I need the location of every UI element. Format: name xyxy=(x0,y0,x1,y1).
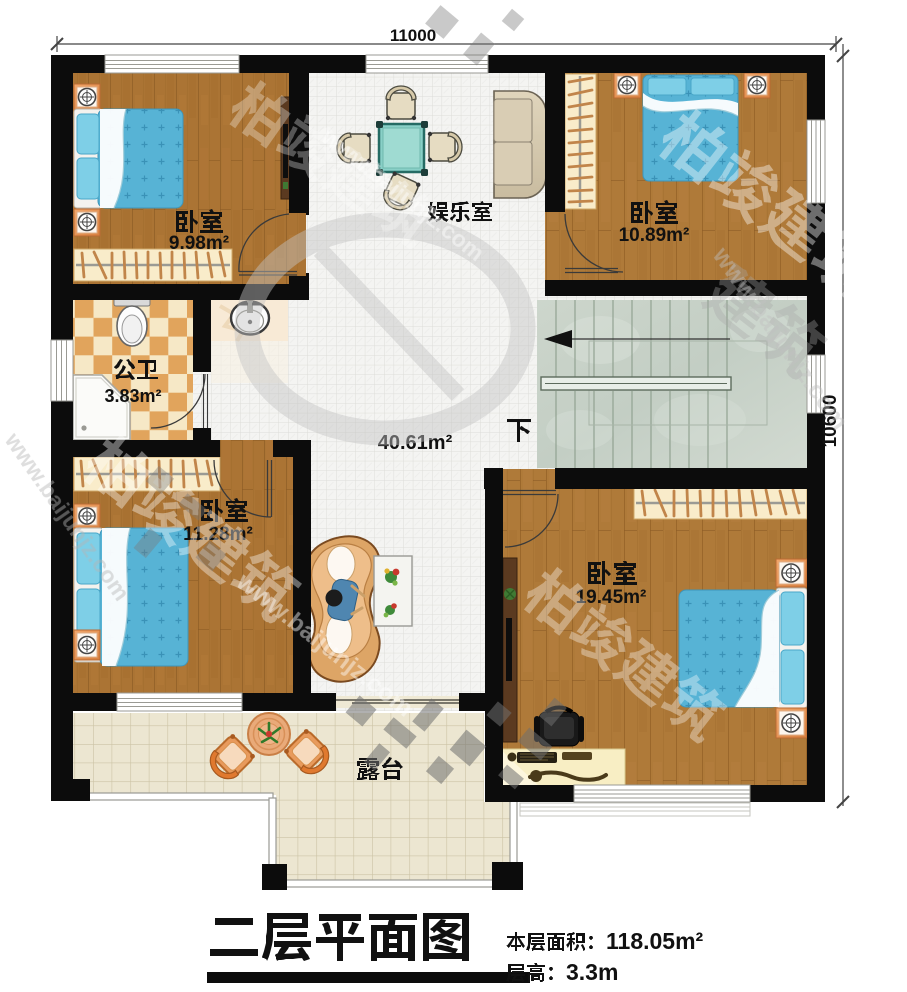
svg-text:3.83m²: 3.83m² xyxy=(104,386,161,406)
svg-text:11000: 11000 xyxy=(390,26,436,45)
svg-text:10.89m²: 10.89m² xyxy=(619,225,690,246)
svg-text:3.3m: 3.3m xyxy=(566,959,618,985)
svg-text:9.98m²: 9.98m² xyxy=(169,233,229,254)
svg-text:19.45m²: 19.45m² xyxy=(576,587,647,608)
svg-text:118.05m²: 118.05m² xyxy=(606,928,704,954)
